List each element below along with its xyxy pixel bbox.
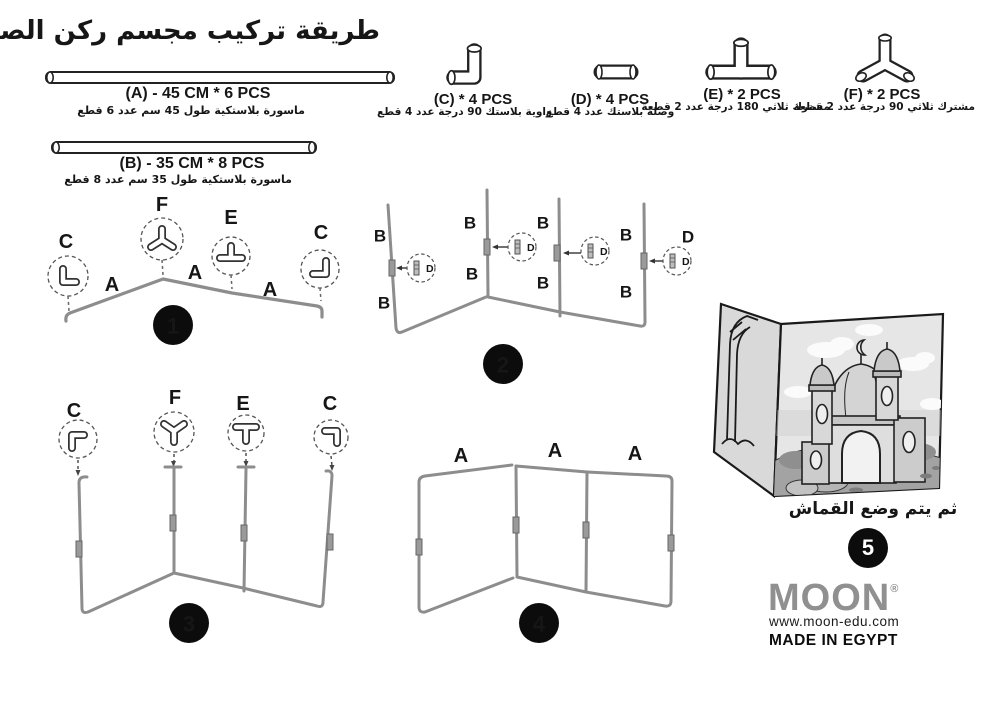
step2-coupling-label: D xyxy=(682,228,694,247)
part-f-desc: مشترك ثلاثي 90 درجة عدد 2 قطعة xyxy=(800,101,975,113)
step3-connector-label: F xyxy=(169,387,181,409)
step1-pipe-label: A xyxy=(263,279,277,301)
brand-wordmark: MOON xyxy=(768,577,890,619)
step3-connector-label: E xyxy=(236,393,249,415)
callout-circles xyxy=(59,412,348,458)
frame-pipes xyxy=(419,465,672,612)
step4-number: 4 xyxy=(533,612,546,637)
step4-pipe-label: A xyxy=(548,440,562,462)
step3-connector-label: C xyxy=(67,400,81,422)
step2-pipe-label: B xyxy=(537,214,549,233)
step4-pipe-label: A xyxy=(628,443,642,465)
step1-connector-label: F xyxy=(156,194,168,216)
callout-letter: D xyxy=(600,246,608,258)
brand-website: www.moon-edu.com xyxy=(769,614,899,629)
registered-mark: ® xyxy=(890,583,898,595)
step5-caption: ثم يتم وضع القماش xyxy=(773,499,973,519)
page-title: طريقة تركيب مجسم ركن الصلاة xyxy=(60,16,380,46)
made-in-label: MADE IN EGYPT xyxy=(769,632,898,650)
part-a-label: (A) - 45 CM * 6 PCS xyxy=(98,85,298,103)
tee-connector-icon xyxy=(702,32,780,84)
step2-pipe-label: B xyxy=(466,265,478,284)
left-fabric-panel xyxy=(714,304,781,496)
callout-letter: D xyxy=(682,256,690,268)
coupling-callout: D xyxy=(396,254,435,282)
step1-number: 1 xyxy=(167,314,179,339)
step1-connector-label: E xyxy=(224,207,237,229)
callout-letter: D xyxy=(426,263,434,275)
elbow-connector-icon xyxy=(438,36,494,90)
step4-pipe-label: A xyxy=(454,445,468,467)
step1-pipe-label: A xyxy=(105,274,119,296)
finished-model-illustration xyxy=(706,292,950,510)
step3-number: 3 xyxy=(183,612,195,637)
step1-connector-label: C xyxy=(314,222,328,244)
callout-arrows xyxy=(76,453,335,476)
part-b-label: (B) - 35 CM * 8 PCS xyxy=(92,155,292,173)
step2-number: 2 xyxy=(497,353,509,378)
frame-pipes xyxy=(79,467,332,613)
callout-letter: D xyxy=(527,242,535,254)
instruction-sheet: طريقة تركيب مجسم ركن الصلاة (A) - 45 CM … xyxy=(0,0,1000,707)
coupling-callout: D xyxy=(649,247,691,275)
step4-diagram: A A A 4 xyxy=(395,425,695,650)
step1-diagram: C F E C A A A 1 xyxy=(30,195,360,350)
brand-logo: MOON® xyxy=(768,579,898,617)
part-c-desc: زاوية بلاستك 90 درجة عدد 4 قطع xyxy=(392,106,552,118)
coupling-marks xyxy=(76,515,333,557)
step3-connector-label: C xyxy=(323,393,337,415)
step5-number-badge: 5 xyxy=(848,528,888,568)
step2-diagram: B B B B B B B B D D D xyxy=(360,185,700,385)
step2-pipe-label: B xyxy=(378,294,390,313)
step2-pipe-label: B xyxy=(464,214,476,233)
step3-diagram: C F E C xyxy=(30,390,360,652)
coupling-connector-icon xyxy=(592,59,640,85)
part-a-desc: ماسورة بلاستكية طول 45 سم عدد 6 قطع xyxy=(105,104,305,117)
step2-pipe-label: B xyxy=(620,226,632,245)
step1-connector-label: C xyxy=(59,231,73,253)
threeway-connector-icon xyxy=(847,28,923,84)
step5-number: 5 xyxy=(862,535,874,561)
step2-pipe-label: B xyxy=(537,274,549,293)
step2-pipe-label: B xyxy=(374,227,386,246)
part-b-desc: ماسورة بلاستكية طول 35 سم عدد 8 قطع xyxy=(92,173,292,186)
step1-pipe-label: A xyxy=(188,262,202,284)
coupling-callout: D xyxy=(563,237,609,265)
step2-pipe-label: B xyxy=(620,283,632,302)
coupling-marks xyxy=(416,517,674,555)
coupling-callout: D xyxy=(492,233,536,261)
